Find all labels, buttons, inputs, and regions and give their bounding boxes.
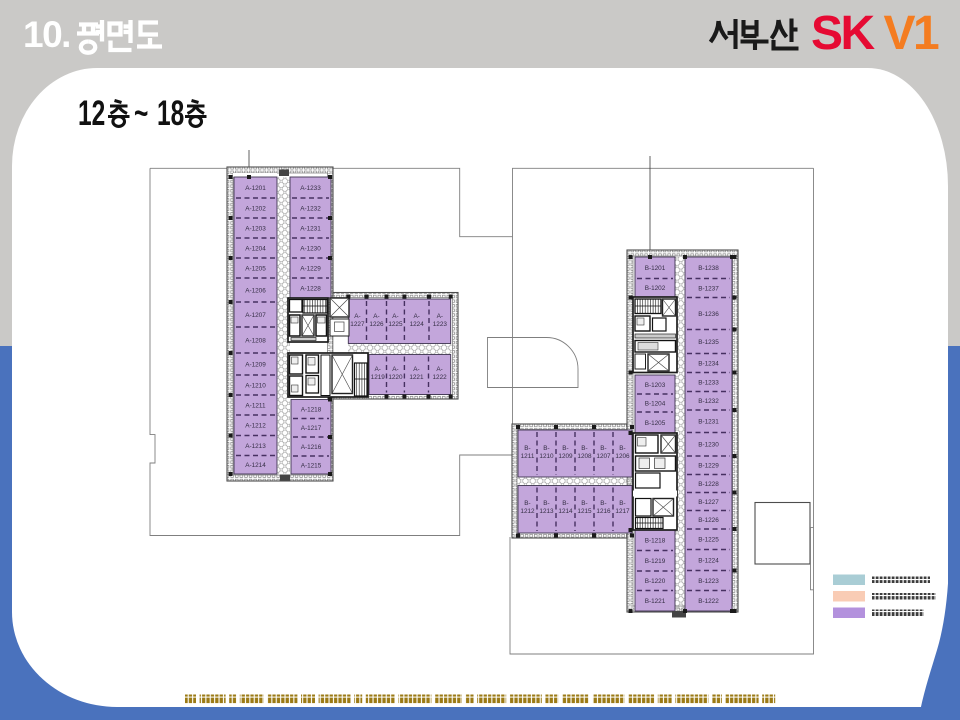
svg-text:A-: A- [413, 366, 419, 373]
svg-text:B-1223: B-1223 [698, 578, 719, 585]
svg-text:1215: 1215 [577, 508, 592, 515]
svg-text:A-: A- [354, 313, 360, 320]
svg-text:1226: 1226 [369, 321, 384, 328]
svg-text:B-: B- [581, 500, 587, 507]
svg-text:B-: B- [543, 445, 549, 452]
svg-text:B-: B- [600, 500, 606, 507]
svg-text:1212: 1212 [520, 508, 535, 515]
svg-text:1214: 1214 [558, 508, 573, 515]
svg-text:B-1234: B-1234 [698, 360, 719, 367]
svg-text:B-1237: B-1237 [698, 285, 719, 292]
svg-text:B-1233: B-1233 [698, 379, 719, 386]
svg-text:A-: A- [437, 313, 443, 320]
svg-text:A-1209: A-1209 [245, 361, 266, 368]
svg-text:B-1221: B-1221 [645, 598, 666, 605]
svg-text:B-1228: B-1228 [698, 481, 719, 488]
svg-text:A-1230: A-1230 [300, 245, 321, 252]
svg-text:B-: B- [543, 500, 549, 507]
svg-text:B-1202: B-1202 [645, 285, 666, 292]
svg-text:B-1226: B-1226 [698, 517, 719, 524]
svg-text:B-1232: B-1232 [698, 398, 719, 405]
svg-text:B-1229: B-1229 [698, 463, 719, 470]
svg-text:B-1204: B-1204 [645, 400, 666, 407]
svg-text:B-1201: B-1201 [645, 265, 666, 272]
svg-text:1219: 1219 [371, 374, 386, 381]
svg-text:A-1231: A-1231 [300, 225, 321, 232]
svg-text:A-1205: A-1205 [245, 265, 266, 272]
svg-text:A-1201: A-1201 [245, 185, 266, 192]
svg-text:A-1233: A-1233 [300, 185, 321, 192]
svg-text:A-1206: A-1206 [245, 287, 266, 294]
svg-text:B-1235: B-1235 [698, 339, 719, 346]
svg-text:1222: 1222 [432, 374, 447, 381]
svg-text:A-: A- [414, 313, 420, 320]
svg-text:B-: B- [619, 445, 625, 452]
svg-text:B-: B- [524, 500, 530, 507]
svg-text:B-1224: B-1224 [698, 557, 719, 564]
svg-text:1210: 1210 [539, 453, 554, 460]
svg-text:1224: 1224 [410, 321, 425, 328]
svg-text:1225: 1225 [388, 321, 403, 328]
svg-text:A-1215: A-1215 [301, 462, 322, 469]
svg-text:A-: A- [392, 313, 398, 320]
svg-text:B-1219: B-1219 [645, 558, 666, 565]
svg-text:1208: 1208 [577, 453, 592, 460]
svg-text:A-1203: A-1203 [245, 225, 266, 232]
svg-text:A-1204: A-1204 [245, 245, 266, 252]
svg-text:A-1212: A-1212 [245, 423, 266, 430]
svg-text:B-: B- [524, 445, 530, 452]
svg-text:1207: 1207 [596, 453, 611, 460]
svg-text:A-1217: A-1217 [301, 425, 322, 432]
svg-text:1223: 1223 [433, 321, 448, 328]
svg-text:B-1218: B-1218 [645, 538, 666, 545]
svg-text:A-1214: A-1214 [245, 462, 266, 469]
svg-text:1216: 1216 [596, 508, 611, 515]
svg-text:A-: A- [392, 366, 398, 373]
svg-text:B-1225: B-1225 [698, 537, 719, 544]
svg-text:1220: 1220 [388, 374, 403, 381]
svg-text:A-: A- [436, 366, 442, 373]
svg-text:1211: 1211 [521, 453, 535, 460]
svg-text:B-1238: B-1238 [698, 265, 719, 272]
svg-text:B-1236: B-1236 [698, 311, 719, 318]
svg-text:A-1232: A-1232 [300, 205, 321, 212]
svg-text:A-1228: A-1228 [300, 285, 321, 292]
svg-text:B-1203: B-1203 [645, 382, 666, 389]
svg-text:1221: 1221 [409, 374, 424, 381]
svg-text:A-1210: A-1210 [245, 382, 266, 389]
svg-text:A-1218: A-1218 [301, 406, 322, 413]
svg-text:B-1227: B-1227 [698, 499, 719, 506]
svg-text:B-: B- [581, 445, 587, 452]
svg-text:A-1207: A-1207 [245, 312, 266, 319]
svg-text:A-1213: A-1213 [245, 443, 266, 450]
svg-text:A-1202: A-1202 [245, 205, 266, 212]
svg-text:1227: 1227 [350, 321, 365, 328]
svg-text:B-1222: B-1222 [698, 598, 719, 605]
svg-text:A-1216: A-1216 [301, 444, 322, 451]
svg-text:A-1208: A-1208 [245, 337, 266, 344]
svg-text:1209: 1209 [558, 453, 573, 460]
svg-text:B-1220: B-1220 [645, 578, 666, 585]
svg-text:A-: A- [373, 313, 379, 320]
svg-text:B-: B- [600, 445, 606, 452]
svg-text:B-: B- [619, 500, 625, 507]
svg-text:B-1230: B-1230 [698, 442, 719, 449]
svg-text:1217: 1217 [615, 508, 630, 515]
svg-text:B-1231: B-1231 [698, 419, 719, 426]
svg-text:A-: A- [375, 366, 381, 373]
svg-text:A-1211: A-1211 [245, 402, 266, 409]
svg-text:1206: 1206 [615, 453, 630, 460]
svg-text:B-: B- [562, 500, 568, 507]
svg-text:B-1205: B-1205 [645, 420, 666, 427]
svg-text:B-: B- [562, 445, 568, 452]
svg-text:1213: 1213 [539, 508, 554, 515]
svg-text:A-1229: A-1229 [300, 265, 321, 272]
